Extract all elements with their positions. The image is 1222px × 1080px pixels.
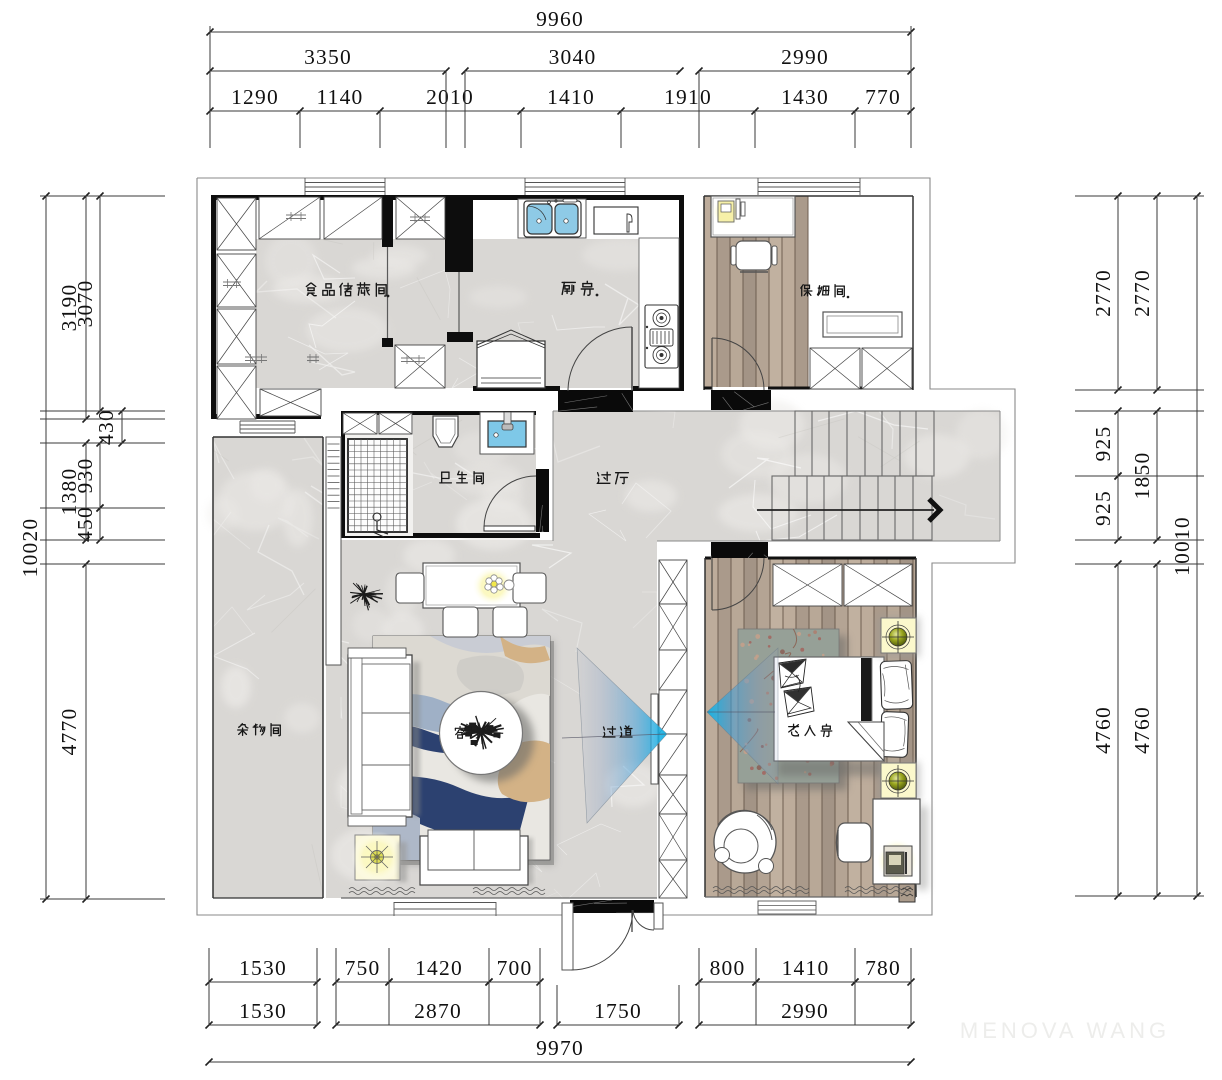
svg-text:430: 430 [94,409,118,445]
svg-text:1910: 1910 [664,85,712,109]
svg-text:9960: 9960 [536,7,584,31]
svg-text:2770: 2770 [1130,269,1154,317]
svg-text:2990: 2990 [781,45,829,69]
svg-text:930: 930 [73,458,97,494]
svg-text:9970: 9970 [536,1036,584,1060]
svg-text:925: 925 [1091,490,1115,526]
svg-text:2770: 2770 [1091,269,1115,317]
svg-text:800: 800 [710,956,746,980]
svg-text:MENOVA WANG: MENOVA WANG [960,1018,1170,1043]
svg-text:450: 450 [73,506,97,542]
svg-text:1420: 1420 [415,956,463,980]
svg-text:2010: 2010 [426,85,474,109]
svg-text:3070: 3070 [73,280,97,328]
svg-text:4760: 4760 [1091,706,1115,754]
svg-text:10010: 10010 [1170,516,1194,576]
svg-text:750: 750 [345,956,381,980]
svg-text:2870: 2870 [414,999,462,1023]
svg-text:10020: 10020 [18,518,42,578]
svg-text:3350: 3350 [304,45,352,69]
svg-text:4770: 4770 [57,708,81,756]
svg-text:1290: 1290 [231,85,279,109]
svg-text:1530: 1530 [239,956,287,980]
svg-text:925: 925 [1091,426,1115,462]
svg-text:700: 700 [497,956,533,980]
svg-text:1410: 1410 [782,956,830,980]
svg-text:4760: 4760 [1130,706,1154,754]
svg-text:780: 780 [865,956,901,980]
svg-text:1430: 1430 [781,85,829,109]
svg-text:1140: 1140 [316,85,363,109]
svg-text:3040: 3040 [549,45,597,69]
svg-text:770: 770 [865,85,901,109]
svg-text:2990: 2990 [781,999,829,1023]
svg-text:1410: 1410 [547,85,595,109]
svg-text:1750: 1750 [594,999,642,1023]
svg-text:1530: 1530 [239,999,287,1023]
